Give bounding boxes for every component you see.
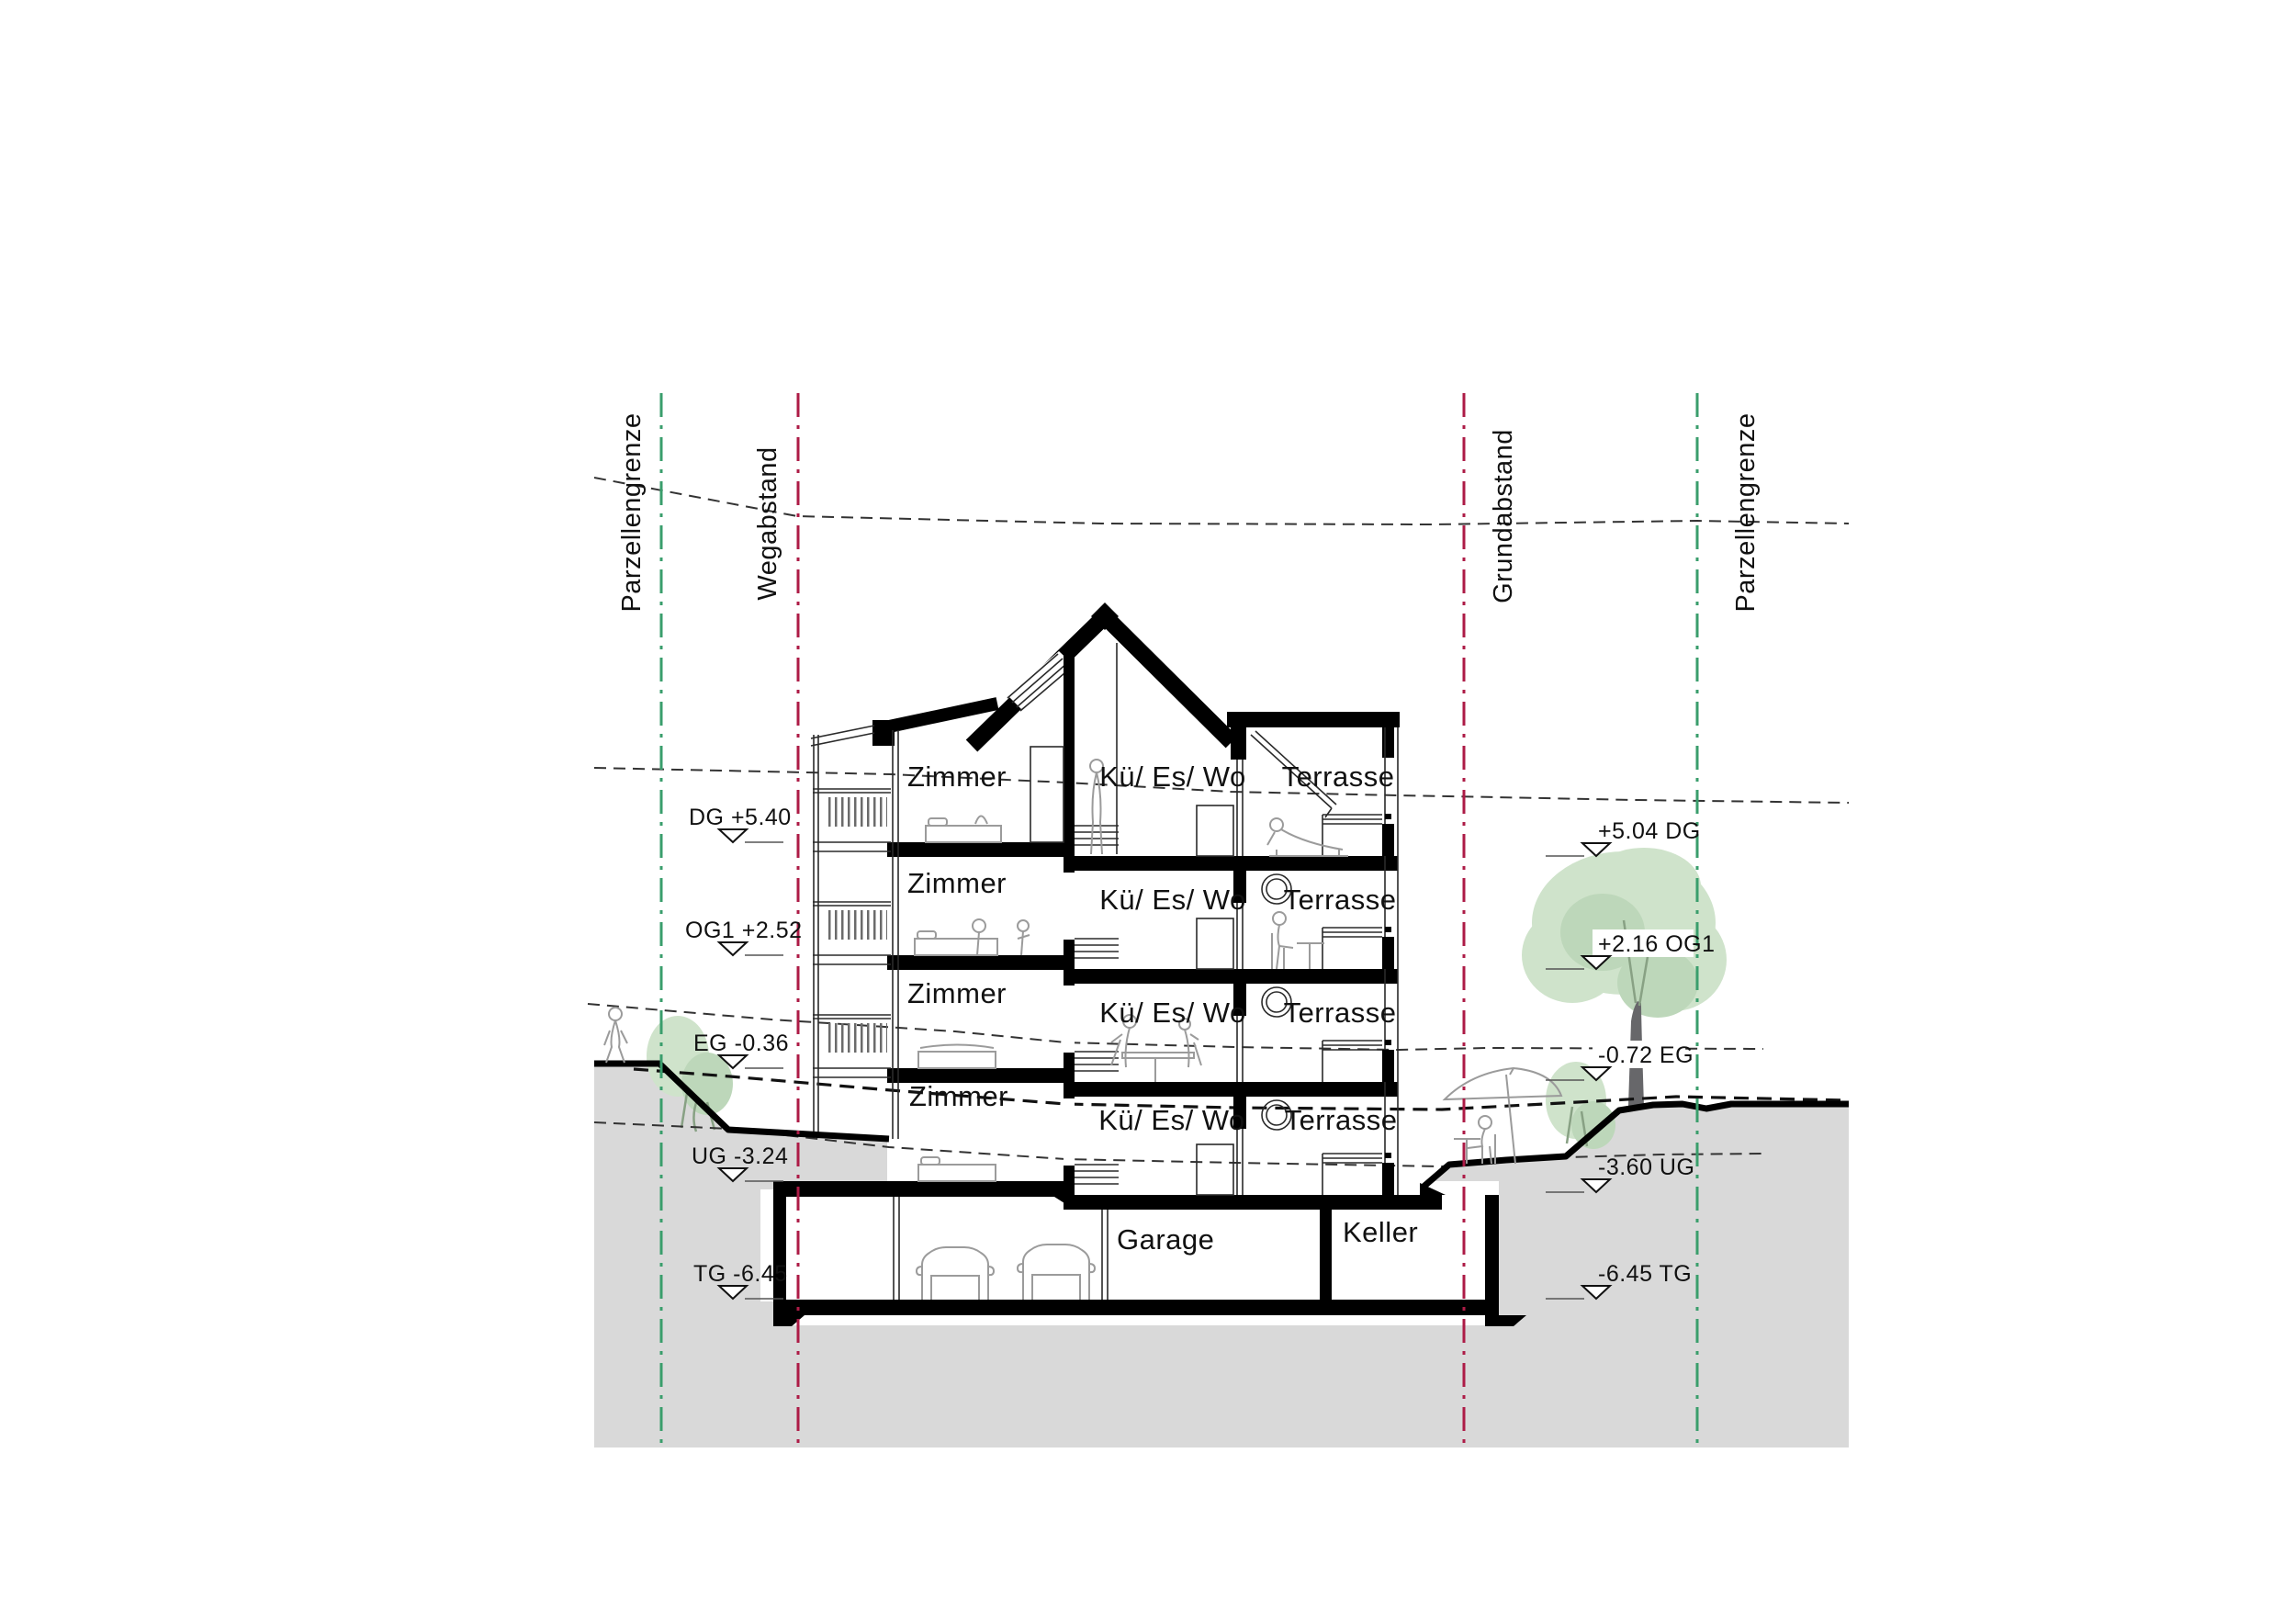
- room-label-terrasse-4: Terrasse: [1285, 1104, 1398, 1136]
- boundary-label-wegabstand: Wegabstand: [753, 446, 782, 600]
- garage-keller-wall: [1320, 1210, 1332, 1300]
- level-label: -6.45 TG: [1598, 1261, 1692, 1287]
- room-label-terrasse-2: Terrasse: [1284, 884, 1397, 916]
- level-label: -0.72 EG: [1598, 1042, 1694, 1068]
- level-marker-dg-right: +5.04 DG: [1546, 818, 1701, 856]
- room-label-zimmer-2: Zimmer: [907, 867, 1007, 899]
- level-label: OG1 +2.52: [685, 918, 803, 943]
- room-label-zimmer-3: Zimmer: [907, 977, 1007, 1009]
- boundary-label-grundabstand: Grundabstand: [1489, 429, 1518, 603]
- room-label-garage: Garage: [1117, 1223, 1214, 1256]
- level-label: +5.04 DG: [1598, 818, 1701, 844]
- level-marker-og1-left: OG1 +2.52: [685, 918, 803, 955]
- level-label: TG -6.45: [693, 1261, 788, 1287]
- room-label-zimmer-1: Zimmer: [907, 760, 1007, 793]
- bush-right: [1546, 1062, 1615, 1149]
- level-label: -3.60 UG: [1598, 1155, 1694, 1180]
- balcony-eg: [813, 1015, 891, 1077]
- level-label: UG -3.24: [692, 1143, 788, 1169]
- umbrella-scene: [1445, 1068, 1561, 1164]
- flat-roof: [1227, 712, 1400, 727]
- section-canvas: DG +5.40 OG1 +2.52 EG -0.36 UG -3.24 TG …: [0, 0, 2296, 1622]
- room-label-kuechewohnen-2: Kü/ Es/ Wo: [1099, 884, 1246, 916]
- boundary-label-parzellengrenze-left: Parzellengrenze: [617, 412, 647, 612]
- room-label-terrasse-3: Terrasse: [1284, 997, 1397, 1029]
- balcony-dg: [813, 789, 891, 851]
- level-marker-dg-left: DG +5.40: [689, 805, 792, 842]
- room-label-kuechewohnen-1: Kü/ Es/ Wo: [1099, 760, 1246, 793]
- room-label-kuechewohnen-4: Kü/ Es/ Wo: [1098, 1104, 1245, 1136]
- garage-floor: [773, 1300, 1499, 1315]
- garage-left-wall: [773, 1181, 786, 1315]
- level-label: EG -0.36: [693, 1031, 789, 1056]
- boundary-labels: Parzellengrenze Wegabstand Grundabstand …: [617, 412, 1761, 612]
- room-label-terrasse-1: Terrasse: [1282, 760, 1395, 793]
- room-label-keller: Keller: [1343, 1216, 1418, 1248]
- boundary-label-parzellengrenze-right: Parzellengrenze: [1731, 412, 1761, 612]
- pedestrian-figure: [604, 1008, 627, 1063]
- balcony-og1: [813, 902, 891, 964]
- building-section-drawing: DG +5.40 OG1 +2.52 EG -0.36 UG -3.24 TG …: [0, 0, 2296, 1622]
- level-label: DG +5.40: [689, 805, 792, 830]
- level-label: +2.16 OG1: [1598, 931, 1716, 957]
- room-label-kuechewohnen-3: Kü/ Es/ Wo: [1099, 997, 1246, 1029]
- room-label-zimmer-4: Zimmer: [909, 1080, 1008, 1112]
- keller-right-wall: [1485, 1195, 1499, 1315]
